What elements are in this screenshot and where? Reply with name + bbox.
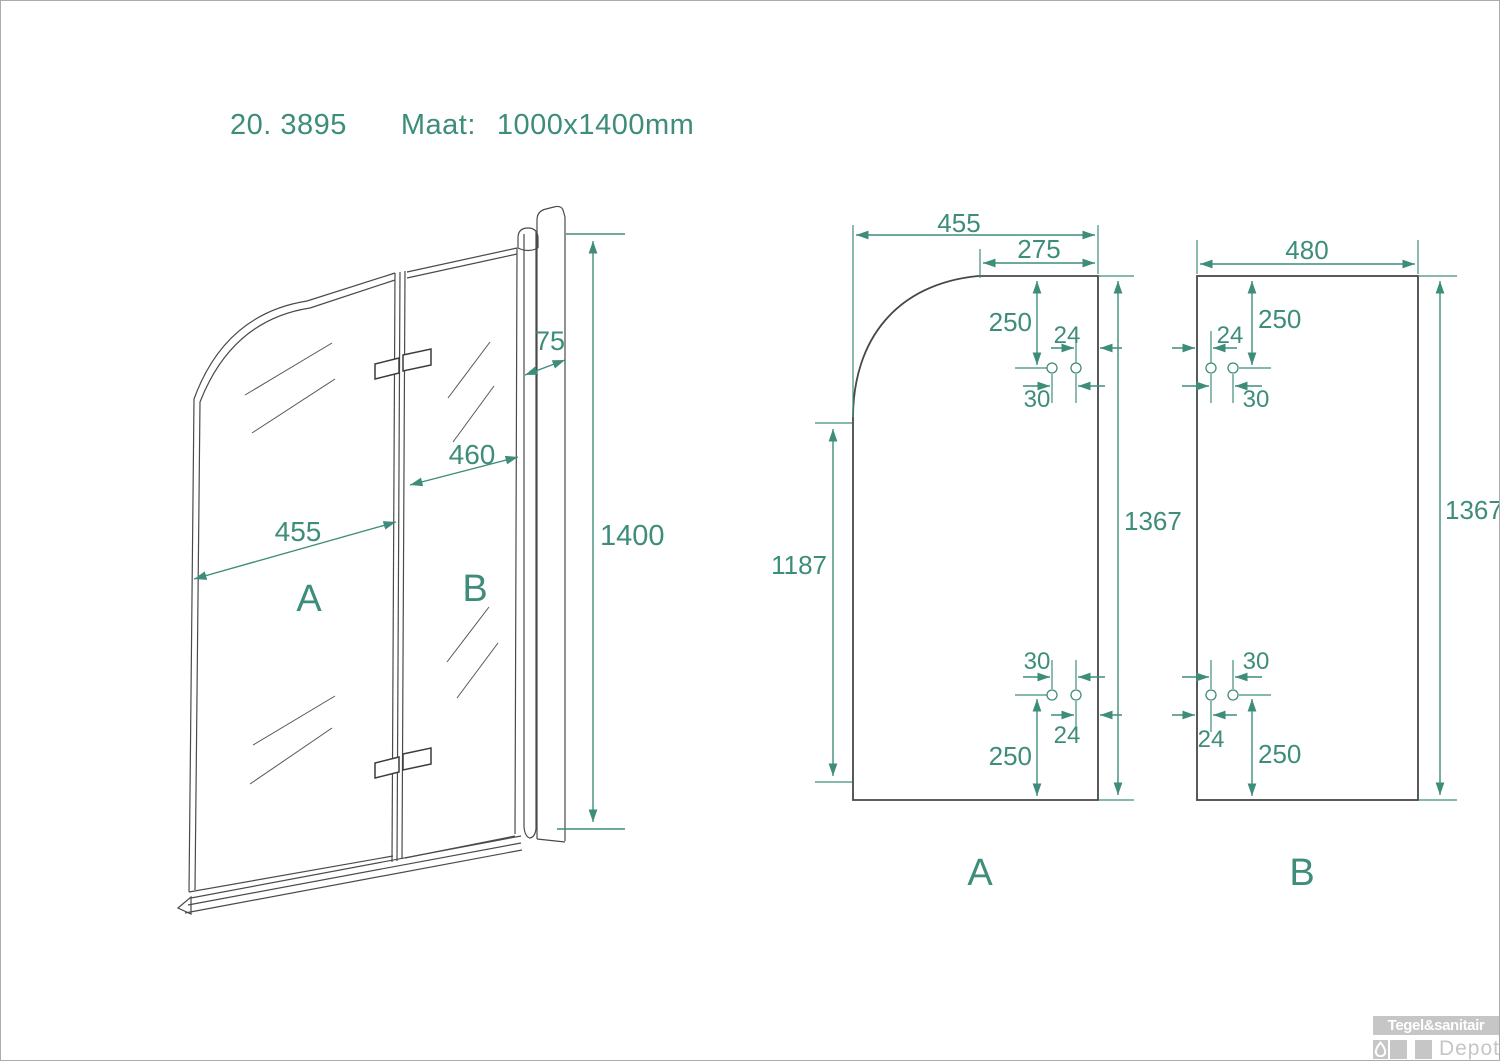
panel-b-top-24-label: 24	[1217, 322, 1244, 349]
bottom-rail	[178, 836, 522, 914]
panel-a-flat-view: 455 275 250 24 30	[771, 208, 1182, 894]
panel-b-bottom-30-label: 30	[1243, 648, 1270, 675]
dim-width-455: 455	[194, 516, 396, 579]
panel-a-bottom-30-label: 30	[1024, 648, 1051, 675]
dim-455-label: 455	[275, 516, 322, 547]
panel-a-top-250-label: 250	[989, 307, 1032, 337]
logo-square	[1390, 1040, 1407, 1059]
dim-75-label: 75	[535, 326, 565, 356]
panel-a-holes	[1047, 363, 1081, 700]
panel-a-width-label: 455	[937, 208, 980, 238]
dim-1400-label: 1400	[600, 520, 665, 552]
panel-a-top-30-label: 30	[1024, 386, 1051, 413]
panel-a-top-24-label: 24	[1054, 322, 1081, 349]
brand-name: Tegel&sanitair	[1373, 1016, 1499, 1035]
logo-square	[1415, 1040, 1432, 1059]
panel-a-glass-outline	[189, 273, 395, 892]
wall-profile	[518, 206, 565, 842]
glass-shine-marks	[245, 342, 498, 784]
dim-460-label: 460	[449, 439, 496, 470]
panel-b-top-250-label: 250	[1258, 304, 1301, 334]
drawing-canvas: 20. 3895 Maat: 1000x1400mm	[0, 0, 1500, 1061]
top-hinge	[375, 349, 431, 379]
technical-drawing: 1400 75 460 455 A B	[1, 1, 1500, 1061]
perspective-view: 1400 75 460 455 A B	[178, 206, 665, 914]
perspective-panel-b-label: B	[462, 568, 487, 610]
panel-b-dimensions: 480 250 24 30 1367	[1172, 235, 1500, 800]
panel-a-top-width-label: 275	[1017, 234, 1060, 264]
panel-b-top-30-label: 30	[1243, 386, 1270, 413]
panel-a-bottom-24-label: 24	[1054, 722, 1081, 749]
panel-b-width-label: 480	[1285, 235, 1328, 265]
panel-b-bottom-250-label: 250	[1258, 739, 1301, 769]
brand-subname: Depot	[1439, 1037, 1500, 1061]
panel-b-height-label: 1367	[1445, 495, 1500, 525]
panel-a-1187-label: 1187	[771, 550, 827, 580]
perspective-panel-a-label: A	[296, 578, 322, 620]
brand-watermark: Tegel&sanitair Depot	[1373, 1016, 1500, 1061]
panel-a-dimensions: 455 275 250 24 30	[771, 208, 1182, 800]
panel-a-label: A	[967, 852, 993, 894]
dim-profile-75: 75	[525, 326, 565, 375]
panel-b-label: B	[1289, 852, 1314, 894]
dim-height-1400: 1400	[557, 234, 665, 829]
dim-width-460: 460	[410, 439, 518, 485]
panel-a-bottom-250-label: 250	[989, 741, 1032, 771]
panel-b-flat-view: 480 250 24 30 1367	[1172, 235, 1500, 894]
panel-b-outline	[1197, 276, 1418, 800]
panel-b-holes	[1206, 363, 1238, 700]
droplet-icon	[1373, 1040, 1388, 1059]
panel-b-bottom-24-label: 24	[1198, 726, 1225, 753]
panel-a-height-label: 1367	[1124, 506, 1182, 536]
